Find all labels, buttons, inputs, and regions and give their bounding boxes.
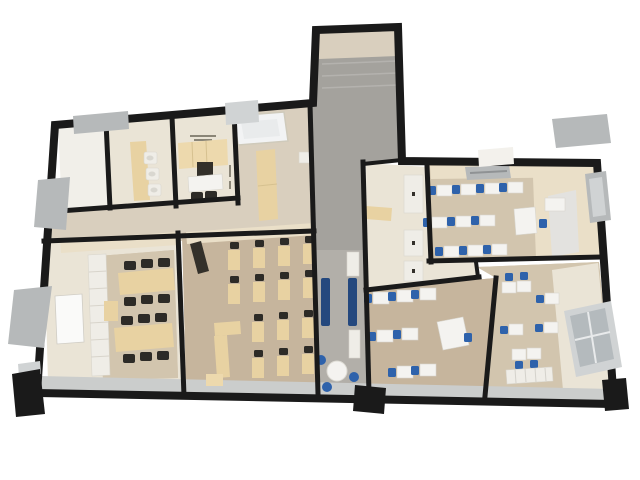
chair [515,361,523,369]
chair [476,184,484,193]
wall-cabinet [349,330,360,358]
student-desk [228,250,240,270]
student-desk [373,292,389,304]
chair [447,217,455,226]
kitchen-table [188,174,223,192]
window-slab-left-upper [34,177,70,230]
chair [138,314,150,323]
chair [452,185,460,194]
student-desk [461,184,476,195]
student-desk [492,244,507,255]
entrance-pillar [353,385,386,414]
appliance [197,162,213,176]
chair [157,351,169,360]
teacher-desk-L-top [214,321,241,336]
round-table [327,361,347,381]
student-desk [397,366,413,378]
chair [279,348,288,355]
teacher-desk [437,317,469,350]
low-cabinet [206,374,223,386]
stool [322,382,332,392]
long-table [114,323,174,352]
student-desk [397,290,413,302]
chair [435,247,443,256]
stool [349,372,359,382]
chair [158,294,170,303]
student-desk [545,293,559,304]
chair [141,259,153,268]
chair [155,313,167,322]
student-desk [456,216,471,227]
chair [536,295,544,303]
chair [388,292,396,301]
student-desk [502,282,516,293]
window-slab-top-center [225,100,259,125]
chair [124,261,136,270]
chair [464,333,472,342]
student-desk [278,246,290,266]
chair [520,272,528,280]
chair [158,258,170,267]
teacher-desk [514,207,537,235]
bench [321,278,330,326]
floor-label-illegible [190,135,216,137]
whiteboard [55,294,84,344]
student-desk [420,364,436,376]
sink-basin [151,188,158,193]
chair [500,326,508,334]
chair [539,219,547,228]
chair [499,183,507,192]
student-desk [402,328,418,340]
corner-pillar [602,378,629,411]
sink-basin [147,156,154,161]
student-desk [377,330,393,342]
chair [505,273,513,281]
stall-sign-glyph [412,241,415,245]
chair [280,238,289,245]
chair [255,240,264,247]
bench [348,278,357,326]
chair [140,352,152,361]
student-desk [277,320,289,340]
wall-label-illegible [229,181,231,189]
stall-sign-glyph [412,192,415,196]
chair [471,216,479,225]
chair [141,295,153,304]
student-desk [485,183,500,194]
chair [388,368,396,377]
student-desk [444,246,459,257]
chair [535,324,543,332]
student-desk [527,348,541,359]
chair [254,314,263,321]
student-desk [253,248,265,268]
chair [304,346,313,353]
student-desk [508,182,523,193]
stall-sign-glyph [412,269,415,273]
sink-basin [149,172,156,177]
student-desk [468,245,483,256]
wall-cabinet [347,252,359,276]
chair [483,245,491,254]
side-table [104,301,118,321]
chair [254,350,263,357]
wall-label-illegible [229,165,231,177]
student-desk [509,324,523,335]
chair [255,274,264,281]
student-desk [512,349,526,360]
student-desk [302,318,314,338]
chair [121,316,133,325]
student-desk [544,322,558,333]
dark-corner-wedge [12,369,45,417]
chair [279,312,288,319]
window-slab-top-right [552,114,611,148]
student-desk [432,217,447,228]
student-desk [420,288,436,300]
floor-plan-rendering [0,0,640,480]
student-desk [253,282,265,302]
chair [411,366,419,375]
roof-piece-white [478,147,514,167]
chair [530,360,538,368]
student-desk [277,356,289,376]
student-desk [437,185,452,196]
floor-plan-svg [0,0,640,480]
student-desk [480,215,495,226]
wall-jog [476,262,478,277]
student-desk [517,281,531,292]
chair [411,290,419,299]
chair [230,242,239,249]
chair [124,297,136,306]
counter [365,206,392,221]
student-desk [252,322,264,342]
chair [304,310,313,317]
chair [459,246,467,255]
chair [123,354,135,363]
chair [280,272,289,279]
student-desk [228,284,240,304]
student-desk [278,280,290,300]
chair [230,276,239,283]
sideboard [545,198,565,211]
chair [393,330,401,339]
student-desk [302,354,314,374]
student-desk [252,358,264,378]
